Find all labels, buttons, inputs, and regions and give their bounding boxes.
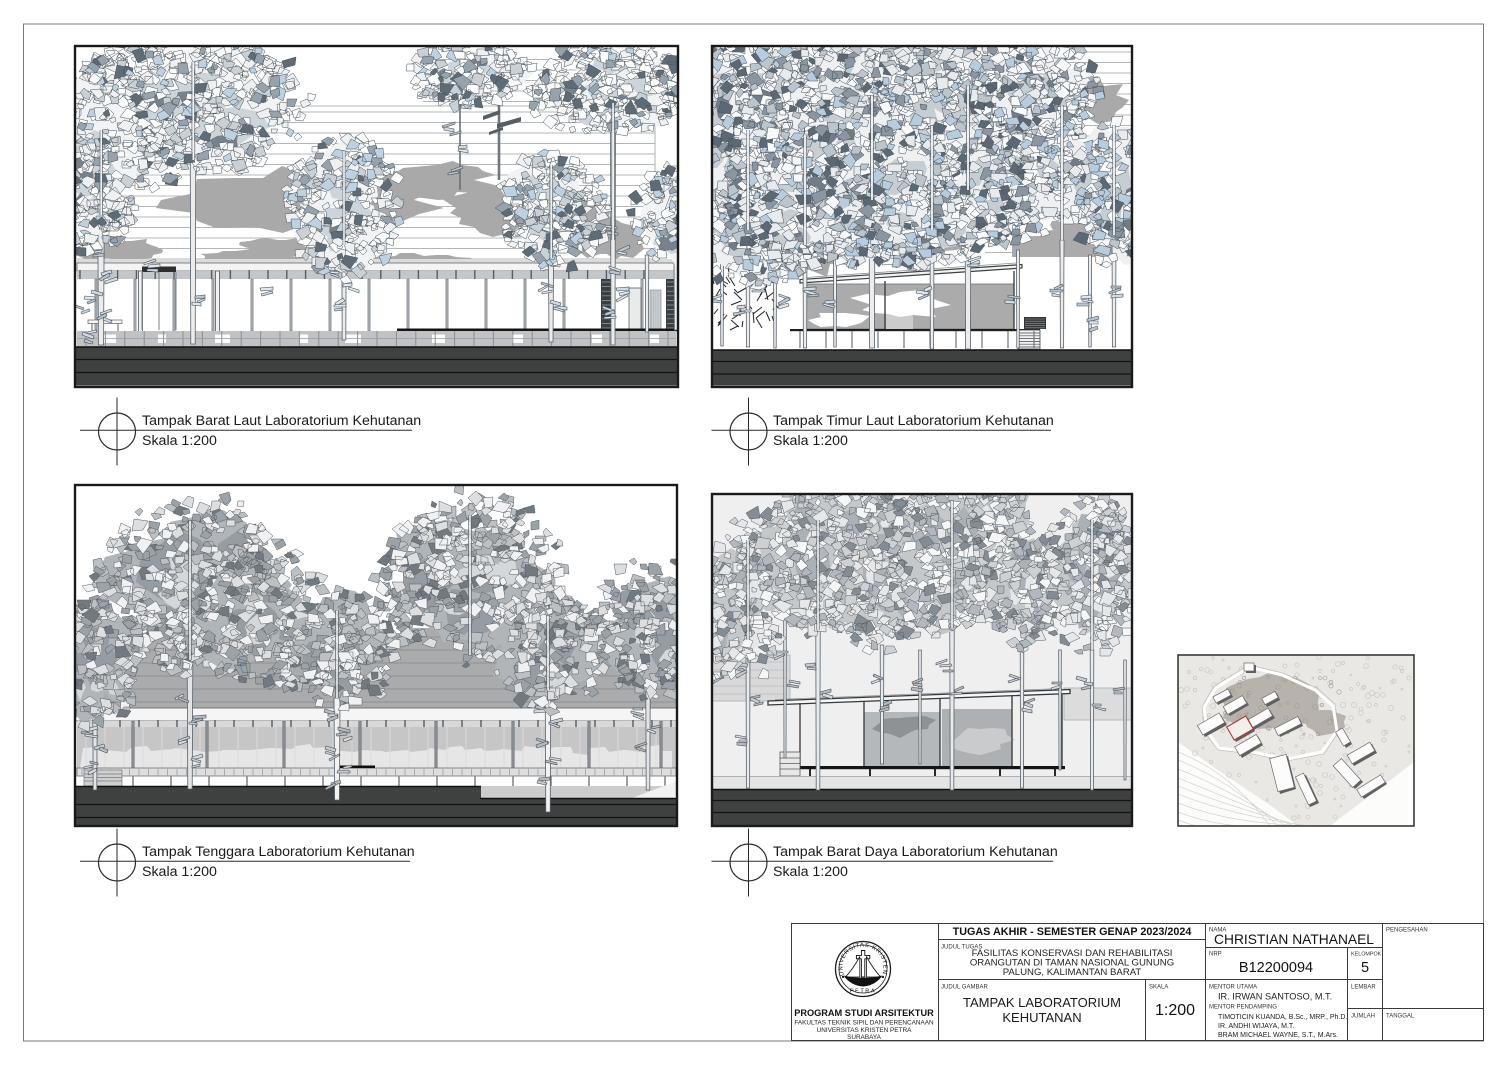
svg-text:Tampak Barat Laut Laboratorium: Tampak Barat Laut Laboratorium Kehutanan xyxy=(142,413,421,429)
svg-text:SURABAYA: SURABAYA xyxy=(847,1034,882,1041)
svg-text:Skala 1:200: Skala 1:200 xyxy=(773,433,848,449)
svg-text:Tampak Timur Laut Laboratorium: Tampak Timur Laut Laboratorium Kehutanan xyxy=(773,413,1054,429)
svg-text:TAMPAK LABORATORIUM: TAMPAK LABORATORIUM xyxy=(963,995,1121,1010)
svg-text:IR. ANDHI WIJAYA, M.T.: IR. ANDHI WIJAYA, M.T. xyxy=(1218,1023,1294,1030)
svg-text:NRP: NRP xyxy=(1209,952,1222,958)
svg-text:MENTOR UTAMA: MENTOR UTAMA xyxy=(1209,985,1257,991)
svg-text:Skala 1:200: Skala 1:200 xyxy=(142,864,217,880)
svg-text:JUMLAH: JUMLAH xyxy=(1351,1014,1375,1020)
svg-text:TUGAS AKHIR - SEMESTER GENAP 2: TUGAS AKHIR - SEMESTER GENAP 2023/2024 xyxy=(953,926,1192,938)
svg-text:5: 5 xyxy=(1361,960,1369,976)
svg-text:JUDUL GAMBAR: JUDUL GAMBAR xyxy=(941,985,988,991)
svg-text:KEHUTANAN: KEHUTANAN xyxy=(1002,1010,1081,1025)
svg-text:Skala 1:200: Skala 1:200 xyxy=(773,864,848,880)
svg-text:PROGRAM STUDI ARSITEKTUR: PROGRAM STUDI ARSITEKTUR xyxy=(794,1008,934,1018)
svg-text:PENGESAHAN: PENGESAHAN xyxy=(1386,928,1428,934)
svg-text:PALUNG, KALIMANTAN BARAT: PALUNG, KALIMANTAN BARAT xyxy=(1003,967,1142,978)
svg-text:MENTOR PENDAMPING: MENTOR PENDAMPING xyxy=(1209,1005,1277,1011)
svg-text:Tampak Tenggara Laboratorium K: Tampak Tenggara Laboratorium Kehutanan xyxy=(142,844,415,860)
svg-text:1:200: 1:200 xyxy=(1155,1002,1195,1019)
svg-text:CHRISTIAN NATHANAEL: CHRISTIAN NATHANAEL xyxy=(1214,932,1374,947)
svg-text:FAKULTAS TEKNIK SIPIL DAN PERE: FAKULTAS TEKNIK SIPIL DAN PERENCANAAN xyxy=(794,1020,934,1027)
svg-text:B12200094: B12200094 xyxy=(1239,960,1313,976)
svg-text:LEMBAR: LEMBAR xyxy=(1351,985,1376,991)
svg-text:TANGGAL: TANGGAL xyxy=(1386,1014,1415,1020)
svg-text:IR. IRWAN SANTOSO, M.T.: IR. IRWAN SANTOSO, M.T. xyxy=(1218,992,1332,1002)
svg-text:BRAM MICHAEL WAYNE, S.T., M.Ar: BRAM MICHAEL WAYNE, S.T., M.Ars. xyxy=(1218,1032,1338,1039)
svg-text:UNIVERSITAS KRISTEN PETRA: UNIVERSITAS KRISTEN PETRA xyxy=(817,1027,912,1034)
svg-text:TIMOTICIN KUANDA, B.Sc., MRP.,: TIMOTICIN KUANDA, B.Sc., MRP., Ph.D. xyxy=(1218,1014,1347,1021)
svg-text:KELOMPOK: KELOMPOK xyxy=(1351,952,1382,958)
svg-text:PETRA: PETRA xyxy=(850,989,876,995)
svg-text:SKALA: SKALA xyxy=(1149,985,1168,991)
svg-text:Skala 1:200: Skala 1:200 xyxy=(142,433,217,449)
svg-text:Tampak Barat Daya Laboratorium: Tampak Barat Daya Laboratorium Kehutanan xyxy=(773,844,1058,860)
